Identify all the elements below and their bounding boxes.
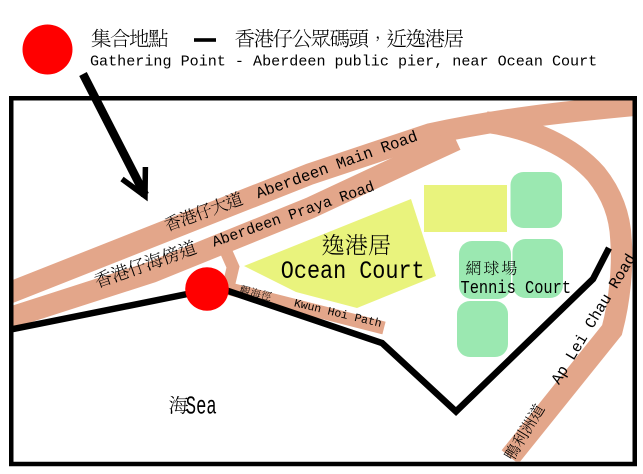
svg-text:Gathering Point - Aberdeen pub: Gathering Point - Aberdeen public pier, …: [90, 53, 597, 71]
svg-text:Tennis Court: Tennis Court: [461, 279, 572, 300]
svg-text:Ocean Court: Ocean Court: [281, 258, 425, 287]
svg-text:Sea: Sea: [186, 392, 217, 422]
